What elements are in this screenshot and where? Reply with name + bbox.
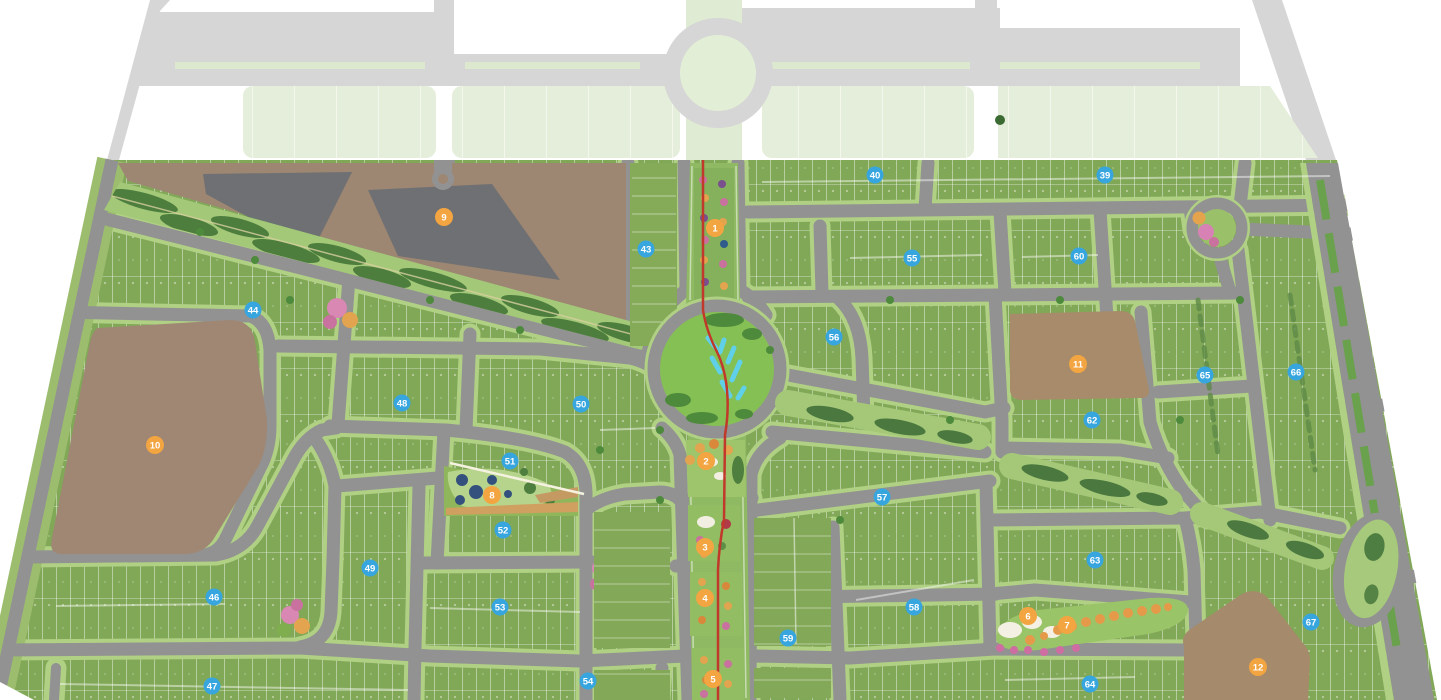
svg-text:55: 55 [907, 254, 918, 265]
svg-text:47: 47 [207, 682, 218, 693]
svg-text:4: 4 [702, 594, 708, 605]
svg-text:49: 49 [365, 564, 376, 575]
svg-text:44: 44 [248, 306, 259, 317]
svg-text:60: 60 [1074, 252, 1085, 263]
svg-text:64: 64 [1085, 680, 1096, 691]
svg-text:62: 62 [1087, 416, 1098, 427]
svg-text:51: 51 [505, 457, 516, 468]
svg-text:9: 9 [441, 213, 446, 224]
svg-text:50: 50 [576, 400, 587, 411]
svg-text:39: 39 [1100, 171, 1111, 182]
svg-text:1: 1 [712, 224, 718, 235]
svg-text:43: 43 [641, 245, 652, 256]
svg-text:58: 58 [909, 603, 920, 614]
svg-text:67: 67 [1306, 618, 1317, 629]
svg-text:57: 57 [877, 493, 888, 504]
svg-text:12: 12 [1253, 663, 1264, 674]
svg-text:65: 65 [1200, 371, 1211, 382]
svg-text:59: 59 [783, 634, 794, 645]
svg-text:5: 5 [710, 675, 716, 686]
svg-text:2: 2 [703, 457, 708, 468]
svg-text:56: 56 [829, 333, 840, 344]
svg-text:46: 46 [209, 593, 220, 604]
svg-text:54: 54 [583, 677, 594, 688]
svg-text:52: 52 [498, 526, 509, 537]
svg-text:53: 53 [495, 603, 506, 614]
svg-text:63: 63 [1090, 556, 1101, 567]
svg-text:66: 66 [1291, 368, 1302, 379]
svg-text:11: 11 [1073, 360, 1084, 371]
svg-text:6: 6 [1025, 612, 1030, 623]
svg-text:10: 10 [150, 441, 161, 452]
svg-text:8: 8 [489, 491, 494, 502]
svg-text:48: 48 [397, 399, 408, 410]
svg-text:40: 40 [870, 171, 881, 182]
svg-text:7: 7 [1064, 621, 1069, 632]
svg-text:3: 3 [702, 543, 707, 554]
